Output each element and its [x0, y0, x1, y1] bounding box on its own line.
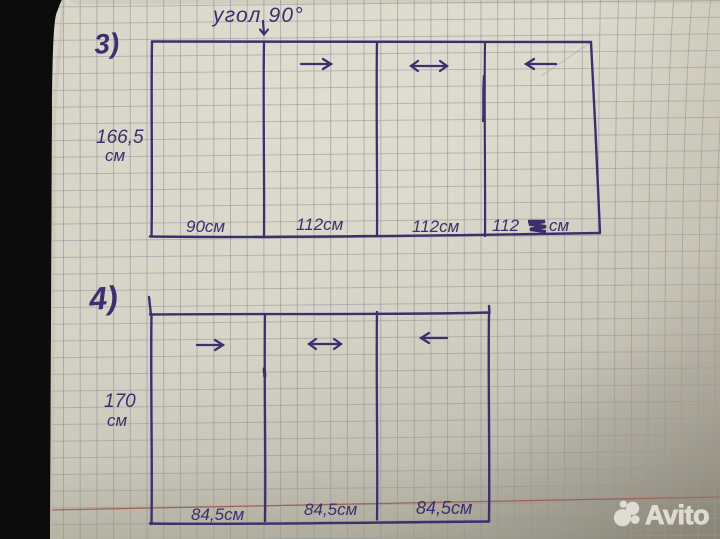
svg-text:90см: 90см: [186, 217, 225, 236]
svg-text:см: см: [105, 146, 126, 165]
svg-text:112см: 112см: [412, 217, 460, 236]
svg-text:3): 3): [93, 27, 120, 60]
svg-text:84,5см: 84,5см: [416, 498, 472, 518]
svg-text:угол 90°: угол 90°: [211, 4, 304, 27]
svg-text:112см: 112см: [296, 215, 344, 234]
svg-text:112: 112: [492, 216, 520, 235]
svg-text:84,5см: 84,5см: [304, 500, 358, 519]
svg-text:см: см: [549, 216, 570, 235]
svg-text:166,5: 166,5: [96, 127, 144, 148]
svg-text:4): 4): [87, 279, 119, 317]
svg-text:Avito: Avito: [645, 500, 709, 530]
svg-text:84,5см: 84,5см: [191, 505, 245, 524]
svg-text:170: 170: [104, 391, 136, 412]
svg-text:см: см: [107, 411, 128, 430]
